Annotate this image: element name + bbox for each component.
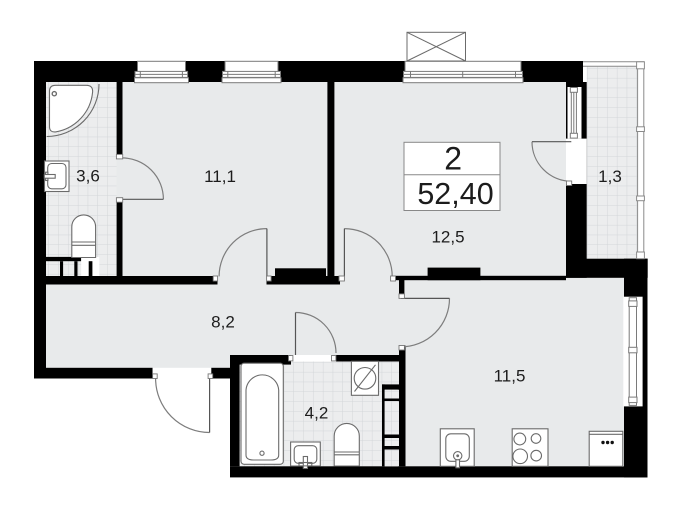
svg-text:3,6: 3,6 <box>76 167 100 186</box>
svg-text:8,2: 8,2 <box>211 313 235 332</box>
svg-text:52,40: 52,40 <box>417 177 493 211</box>
svg-text:2: 2 <box>444 140 462 176</box>
svg-text:4,2: 4,2 <box>305 404 329 423</box>
svg-text:11,5: 11,5 <box>494 367 526 386</box>
svg-text:11,1: 11,1 <box>204 167 236 186</box>
svg-text:1,3: 1,3 <box>598 167 622 186</box>
svg-text:12,5: 12,5 <box>431 228 464 247</box>
